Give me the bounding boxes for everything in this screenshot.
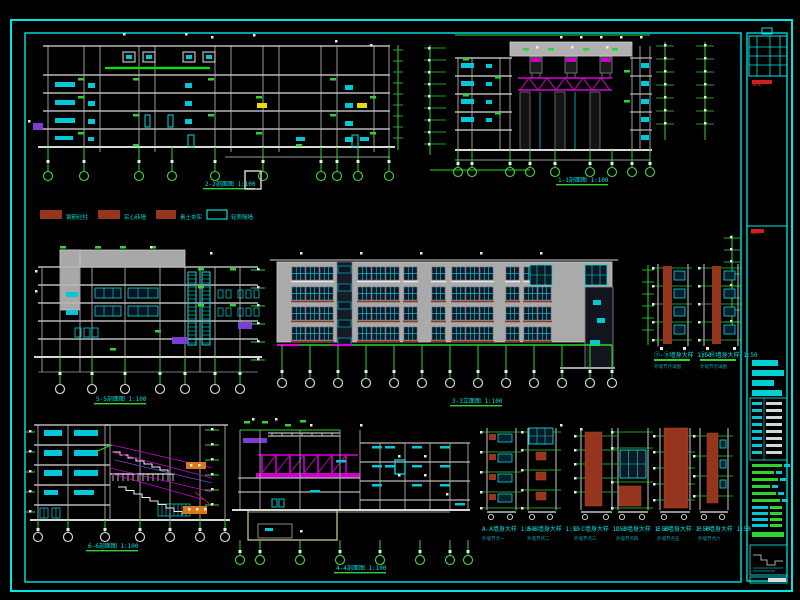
- detail-subtitle: 外墙节点四: [616, 535, 639, 542]
- title-underline: [556, 184, 608, 185]
- drawing-title: 2-2剖面图 1:100: [205, 180, 256, 188]
- detail-title: B-B墙身大样 1:50: [527, 525, 580, 533]
- legend-label: 素土夯实: [180, 213, 203, 221]
- legend-swatch: [98, 210, 120, 219]
- detail-subtitle: 外墙节点详图: [654, 363, 681, 370]
- titleblock-signoff: 审定: [752, 81, 762, 88]
- legend-swatch: [156, 210, 176, 219]
- title-underline: [86, 550, 138, 551]
- detail-subtitle: 外墙节点五: [657, 535, 680, 542]
- legend-label: 钢筋砼柱: [66, 213, 89, 221]
- drawing-title: 4-4剖面图 1:100: [336, 564, 387, 572]
- cad-sheet: 钢筋砼柱 实心砖墙 素土夯实 轻质隔墙 2-2剖面图 1:100 1-1剖面图 …: [0, 0, 800, 600]
- drawing-title: 5-5剖面图 1:100: [96, 395, 147, 403]
- legend-label: 轻质隔墙: [231, 213, 254, 221]
- drawing-title: 1-1剖面图 1:100: [558, 176, 609, 184]
- drawing-title: 3-3立面图 1:100: [452, 397, 503, 405]
- legend-label: 实心砖墙: [124, 213, 147, 221]
- title-underline: [700, 359, 736, 361]
- detail-subtitle: 外墙节点详图: [700, 363, 727, 370]
- detail-title: ⑤-⑨墙身大样 1:50: [700, 351, 758, 359]
- drawing-title: 6-6剖面图 1:100: [88, 542, 139, 550]
- title-underline: [450, 405, 502, 406]
- legend-swatch: [40, 210, 62, 219]
- detail-title: F-F墙身大样 1:50: [698, 525, 751, 533]
- title-underline: [94, 403, 146, 404]
- title-underline: [334, 572, 386, 573]
- detail-subtitle: 外墙节点六: [698, 535, 721, 542]
- title-underline: [654, 359, 690, 361]
- titleblock-revision: 版次: [751, 229, 761, 236]
- cad-canvas: 钢筋砼柱 实心砖墙 素土夯实 轻质隔墙 2-2剖面图 1:100 1-1剖面图 …: [0, 0, 800, 600]
- detail-subtitle: 外墙节点一: [482, 535, 505, 542]
- detail-subtitle: 外墙节点二: [527, 535, 550, 542]
- detail-subtitle: 外墙节点三: [574, 535, 597, 542]
